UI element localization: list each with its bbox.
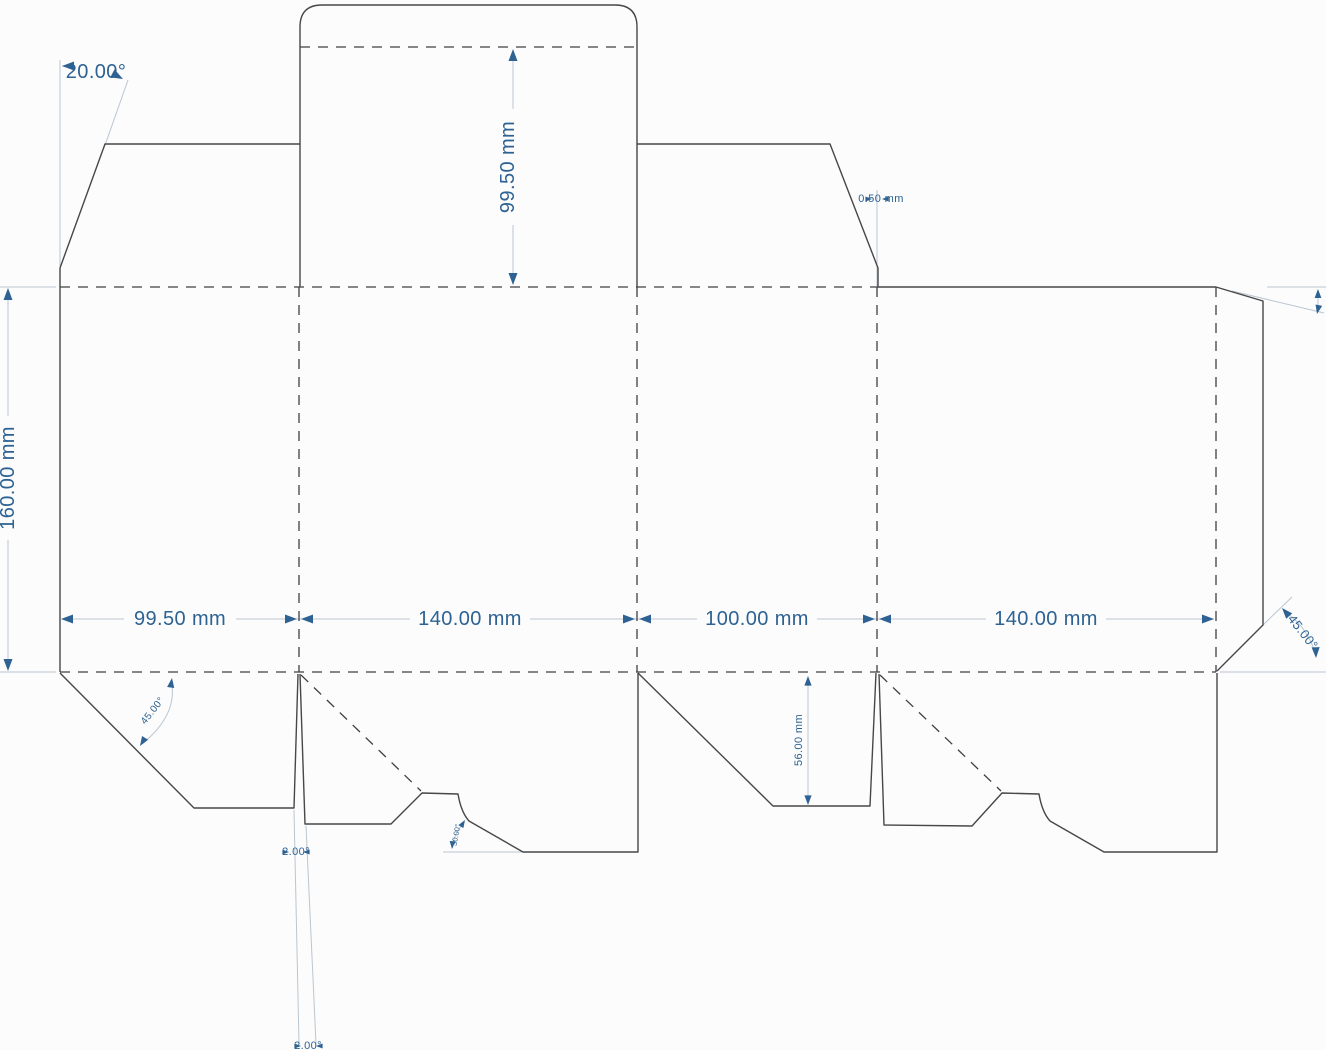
top-left-angle-label: 20.00° [66,61,126,83]
panel4-width-label: 140.00 mm [994,608,1098,630]
lock-crease-left [301,675,421,791]
inner-flap-depth-dimension: 56.00 mm [793,714,805,766]
dieline-canvas: 160.00 mm 99.50 mm 20.00° 0.50 mm 99.50 … [0,0,1326,1050]
top-left-angle-dimension: 20.00° [66,60,126,84]
arrow-up [804,676,811,686]
arrow-left [639,615,651,624]
dimension-lines [0,51,1326,1044]
dimension-arrows [4,49,1323,1048]
lid-depth-dimension: 99.50 mm [495,109,521,225]
panel1-width-label: 99.50 mm [134,608,226,630]
panel1-width-dimension: 99.50 mm [124,606,236,632]
slit-extension-line [306,826,316,1044]
panel2-width-label: 140.00 mm [418,608,522,630]
arrow-left [301,615,313,624]
height-label: 160.00 mm [0,426,19,530]
arrow-right [285,615,297,624]
lid-depth-label: 99.50 mm [497,121,519,213]
arrow-up [167,677,175,688]
lock-crease-right [880,675,1001,791]
arrow-down [1312,647,1320,658]
glue-flap-cut [1216,287,1263,671]
dimension-labels: 160.00 mm 99.50 mm 20.00° 0.50 mm 99.50 … [0,60,1321,1050]
arrow-right [1202,615,1214,624]
left-panel-and-dust-flap-cut [60,144,300,672]
glue-top-slant-leader [1232,291,1324,313]
panel2-width-dimension: 140.00 mm [410,606,530,632]
cut-lines [60,5,1263,852]
bottom-inner-flap-cut [638,673,876,806]
arrow-left [61,615,73,624]
arrow-right [863,615,875,624]
arrow-up [4,288,13,300]
glue-flap-angle-dimension: 45.00° [1285,612,1322,653]
arrow-down [4,659,13,671]
arrow-up [1315,289,1322,298]
right-dust-flap-cut [637,144,878,287]
dieline-drawing: 160.00 mm 99.50 mm 20.00° 0.50 mm 99.50 … [0,0,1326,1050]
arrow-left [879,615,891,624]
arrow-right [623,615,635,624]
arrow-up [509,49,518,61]
arrow-down [509,273,518,285]
height-dimension: 160.00 mm [0,416,21,540]
extension-line-slant [104,80,128,148]
bottom-lock-flap-left-cut [300,673,638,852]
panel3-width-dimension: 100.00 mm [697,606,817,632]
arrow-down [1314,304,1322,314]
bottom-lock-flap-right-cut [879,673,1217,852]
arrow-down [137,736,148,748]
notch-gap-label: 0.50 mm [858,193,904,205]
panel4-width-dimension: 140.00 mm [986,606,1106,632]
inner-flap-depth-label: 56.00 mm [793,714,805,766]
panel3-width-label: 100.00 mm [705,608,809,630]
glue-flap-angle-label: 45.00° [1285,612,1322,653]
arrow-down [804,795,811,805]
bottom-dust-flap-cut [60,673,298,808]
